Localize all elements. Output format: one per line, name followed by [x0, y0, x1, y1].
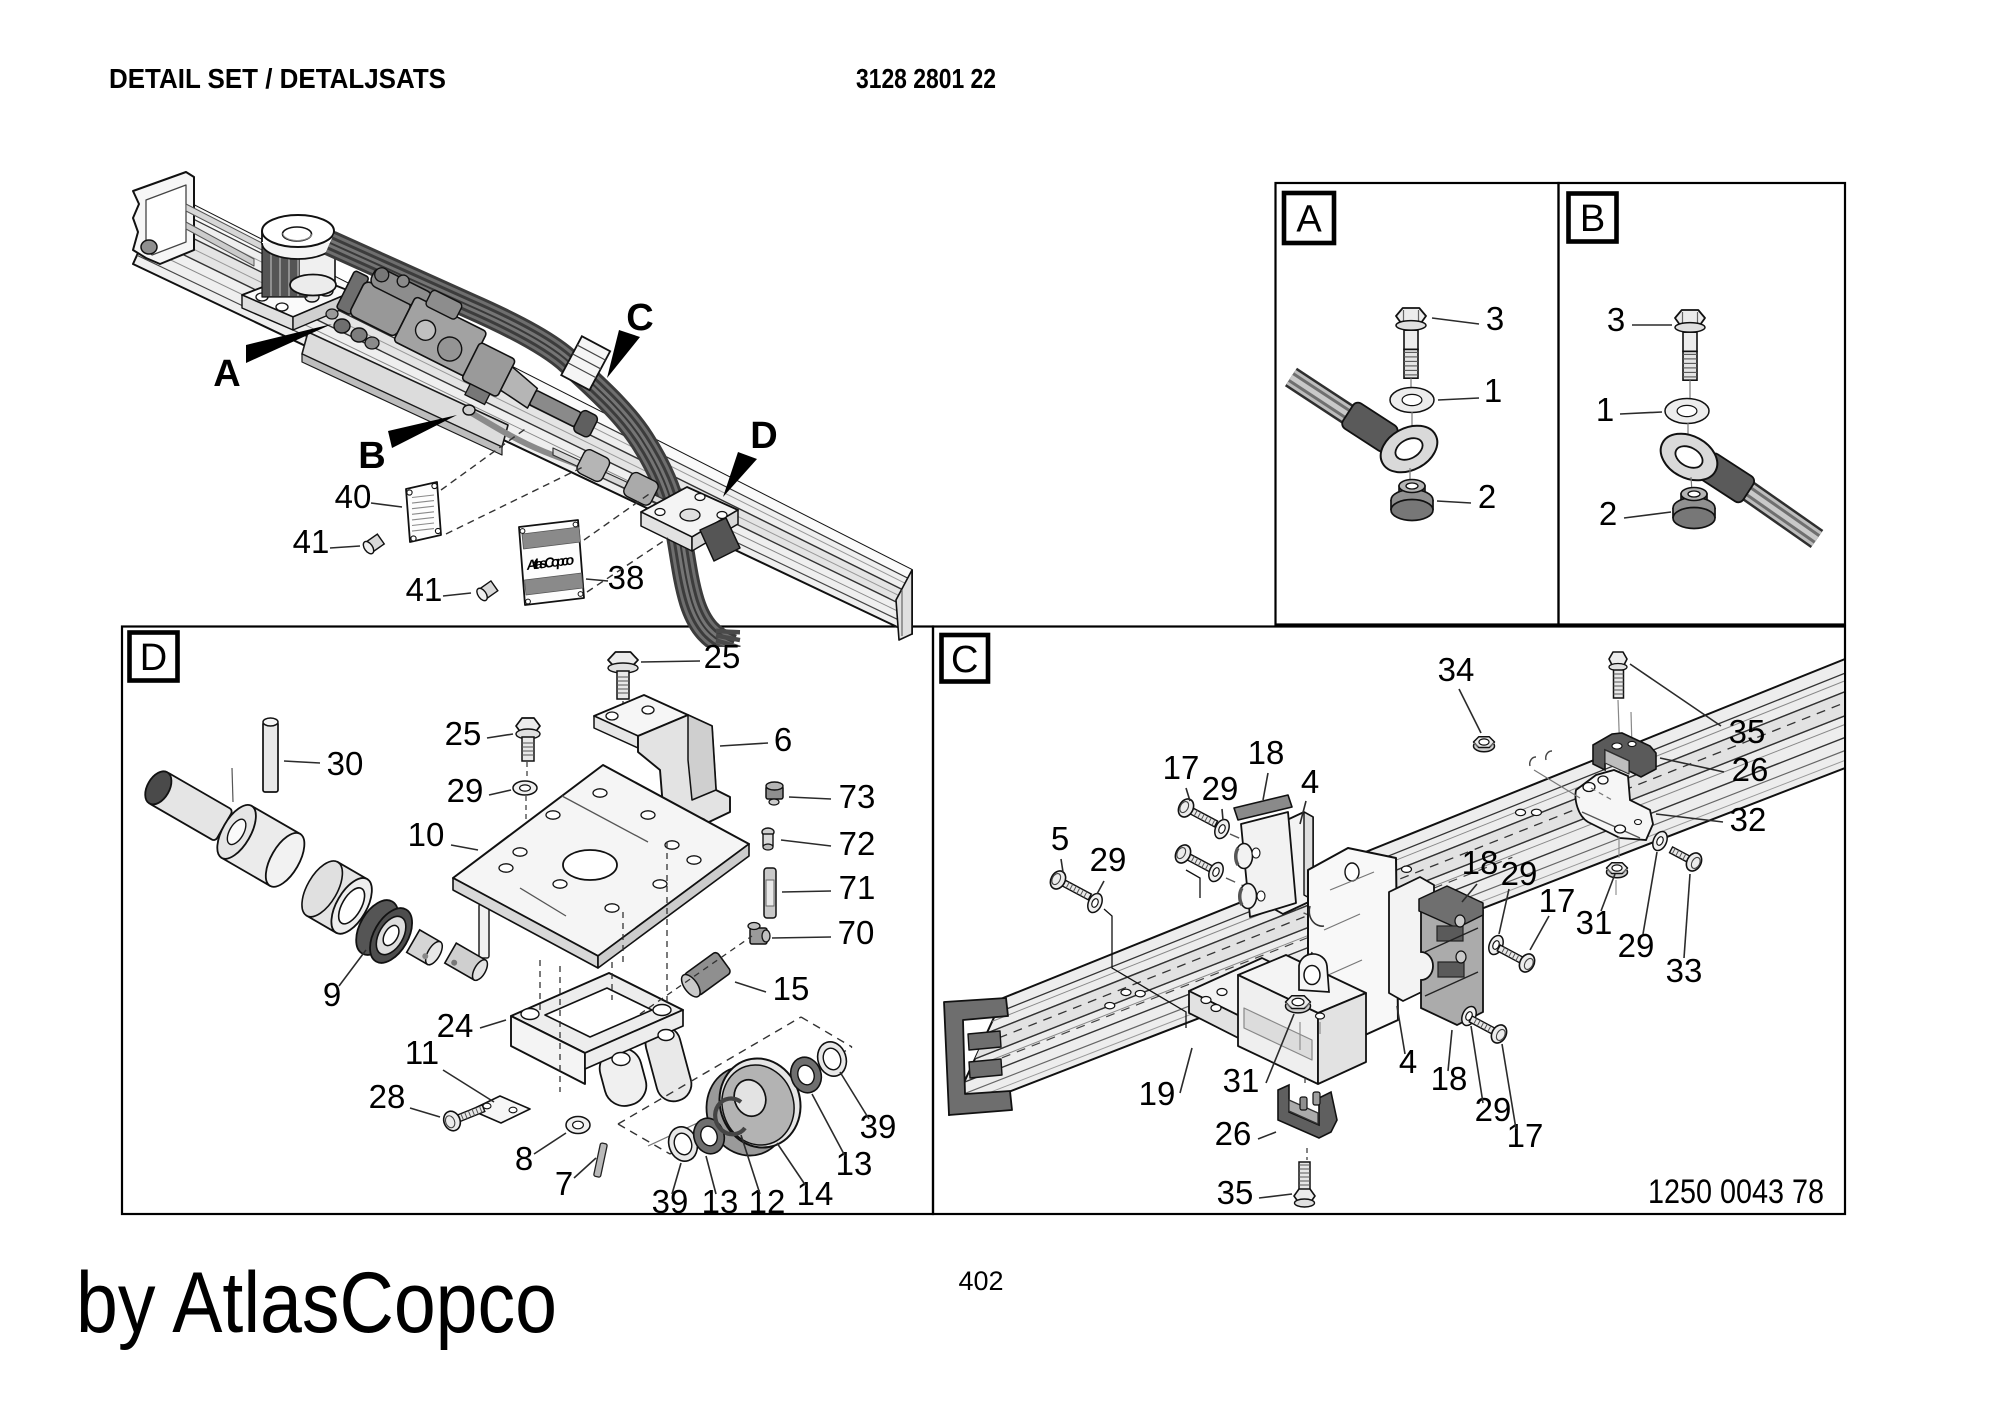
svg-text:3128 2801 22: 3128 2801 22: [856, 63, 996, 94]
svg-text:7: 7: [555, 1165, 573, 1202]
svg-text:18: 18: [1248, 734, 1285, 771]
svg-text:29: 29: [1501, 855, 1538, 892]
svg-text:4: 4: [1301, 763, 1319, 800]
svg-text:71: 71: [839, 869, 876, 906]
svg-text:C: C: [626, 297, 653, 339]
svg-text:13: 13: [836, 1145, 873, 1182]
svg-text:24: 24: [437, 1007, 474, 1044]
svg-text:40: 40: [335, 478, 372, 515]
svg-text:73: 73: [839, 778, 876, 815]
svg-text:B: B: [358, 435, 385, 477]
svg-text:25: 25: [704, 638, 741, 675]
svg-text:11: 11: [405, 1034, 439, 1071]
svg-text:by AtlasCopco: by AtlasCopco: [76, 1255, 557, 1351]
svg-text:17: 17: [1539, 882, 1576, 919]
svg-text:3: 3: [1486, 300, 1504, 337]
svg-text:402: 402: [958, 1266, 1003, 1296]
svg-text:31: 31: [1576, 904, 1613, 941]
svg-text:18: 18: [1462, 844, 1499, 881]
svg-text:6: 6: [774, 721, 792, 758]
svg-text:26: 26: [1215, 1115, 1252, 1152]
svg-text:4: 4: [1399, 1043, 1417, 1080]
svg-text:17: 17: [1163, 749, 1200, 786]
svg-text:A: A: [1296, 199, 1322, 241]
svg-text:5: 5: [1051, 820, 1069, 857]
svg-text:72: 72: [839, 825, 876, 862]
svg-text:28: 28: [369, 1078, 406, 1115]
svg-text:29: 29: [1618, 927, 1655, 964]
svg-text:41: 41: [293, 523, 330, 560]
svg-text:8: 8: [515, 1140, 533, 1177]
svg-text:B: B: [1580, 198, 1605, 240]
svg-text:25: 25: [445, 715, 482, 752]
svg-text:17: 17: [1507, 1117, 1544, 1154]
svg-text:D: D: [750, 415, 777, 457]
svg-text:DETAIL SET / DETALJSATS: DETAIL SET / DETALJSATS: [109, 63, 446, 94]
svg-text:30: 30: [327, 745, 364, 782]
svg-text:32: 32: [1730, 801, 1767, 838]
svg-text:A: A: [213, 353, 240, 395]
svg-text:2: 2: [1478, 478, 1496, 515]
svg-text:C: C: [951, 639, 978, 681]
svg-text:9: 9: [323, 976, 341, 1013]
svg-text:38: 38: [608, 559, 645, 596]
svg-text:26: 26: [1732, 751, 1769, 788]
svg-text:70: 70: [838, 914, 875, 951]
svg-text:10: 10: [408, 816, 445, 853]
svg-text:1: 1: [1596, 391, 1614, 428]
svg-text:29: 29: [1090, 841, 1127, 878]
svg-text:12: 12: [749, 1183, 786, 1220]
svg-text:31: 31: [1223, 1062, 1260, 1099]
svg-text:13: 13: [702, 1183, 739, 1220]
svg-text:39: 39: [652, 1183, 689, 1220]
svg-text:35: 35: [1217, 1174, 1254, 1211]
svg-text:19: 19: [1139, 1075, 1176, 1112]
svg-text:2: 2: [1599, 495, 1617, 532]
svg-text:29: 29: [1202, 770, 1239, 807]
svg-text:1: 1: [1484, 372, 1502, 409]
svg-text:3: 3: [1607, 301, 1625, 338]
svg-text:41: 41: [406, 571, 443, 608]
svg-text:34: 34: [1438, 651, 1475, 688]
svg-text:15: 15: [773, 970, 810, 1007]
svg-text:D: D: [140, 637, 167, 679]
svg-text:29: 29: [447, 772, 484, 809]
svg-text:1250 0043 78: 1250 0043 78: [1648, 1173, 1824, 1211]
svg-text:35: 35: [1729, 713, 1766, 750]
